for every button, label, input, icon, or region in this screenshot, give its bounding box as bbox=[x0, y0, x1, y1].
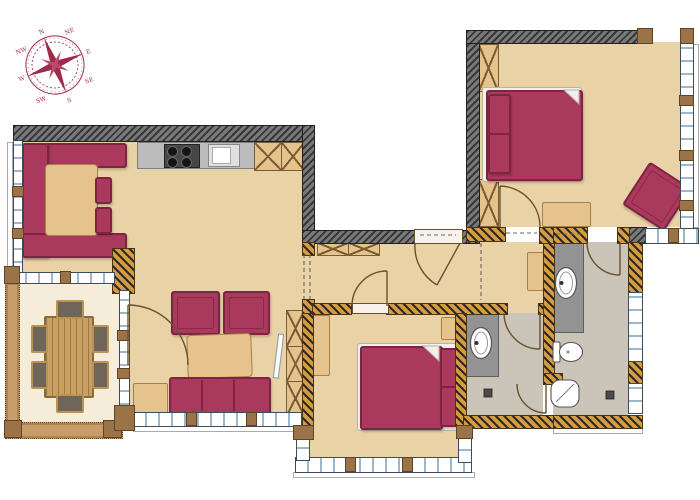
compass-label-se: SE bbox=[84, 76, 95, 86]
compass-label-s: S bbox=[66, 97, 72, 105]
wall-hall-south bbox=[312, 303, 352, 315]
kitchen-cabinet bbox=[254, 142, 282, 171]
compass-label-sw: SW bbox=[35, 95, 48, 106]
veranda-wall-left bbox=[5, 282, 20, 426]
window-post bbox=[679, 150, 694, 161]
bed-blanket bbox=[360, 346, 443, 430]
window-bay-side bbox=[458, 435, 472, 463]
dining-chair bbox=[92, 325, 109, 353]
living-corner-block bbox=[114, 405, 135, 431]
nook-cushion bbox=[95, 207, 112, 234]
burner-icon bbox=[181, 146, 192, 157]
dining-chair bbox=[31, 325, 48, 353]
wall-south-bath2 bbox=[463, 415, 555, 429]
burner-icon bbox=[167, 157, 178, 168]
wall-living-bedroom2 bbox=[302, 313, 314, 429]
window-post bbox=[345, 457, 356, 472]
window-post bbox=[679, 95, 694, 106]
window-post bbox=[12, 228, 24, 239]
bay-corner-block bbox=[456, 425, 473, 439]
exterior-wall-notch-right bbox=[466, 30, 480, 244]
open-passage-living bbox=[302, 253, 313, 300]
vanity-counter bbox=[552, 241, 584, 333]
hall-sideboard bbox=[317, 242, 349, 256]
burner-icon bbox=[181, 157, 192, 168]
hall-sideboard bbox=[348, 242, 380, 256]
wardrobe bbox=[478, 44, 499, 92]
wall-bath1-left bbox=[543, 242, 555, 385]
window-post bbox=[117, 368, 130, 379]
armchair bbox=[223, 291, 270, 335]
window-post bbox=[402, 457, 413, 472]
compass-label-w: W bbox=[18, 74, 27, 83]
hatched-pillar bbox=[112, 248, 135, 294]
window-veranda-living bbox=[119, 290, 130, 417]
window-post bbox=[60, 271, 71, 284]
armchair-cushion bbox=[229, 297, 264, 329]
hall-shelf bbox=[527, 252, 544, 291]
dining-table bbox=[44, 316, 94, 398]
armchair bbox=[171, 291, 220, 335]
wall-hall-south bbox=[386, 303, 508, 315]
coffee-table bbox=[186, 333, 252, 379]
entrance-door bbox=[414, 229, 463, 244]
veranda-corner-top bbox=[4, 266, 20, 284]
exterior-wall-notch-bottom bbox=[302, 230, 416, 244]
wall-south-bath1 bbox=[553, 415, 643, 429]
door-gap-bathroom2 bbox=[505, 303, 539, 313]
wall-bedroom1-south bbox=[466, 227, 506, 242]
window-post bbox=[679, 200, 694, 211]
window-post bbox=[246, 412, 257, 426]
side-table bbox=[133, 383, 168, 414]
bedroom2-bay-floor bbox=[305, 428, 460, 459]
kitchen-sink-basin bbox=[212, 147, 231, 164]
vanity-counter bbox=[466, 313, 499, 377]
exterior-wall-top bbox=[13, 125, 315, 142]
wall-bath1-top bbox=[553, 227, 588, 244]
sofa-seam bbox=[201, 380, 203, 411]
corner-block bbox=[637, 28, 653, 44]
wall-bedroom2-bath2 bbox=[455, 313, 467, 427]
window-bay-south bbox=[295, 457, 472, 473]
wall-bath1-stub bbox=[543, 373, 563, 385]
nook-cushion bbox=[95, 177, 112, 204]
window-post bbox=[186, 412, 197, 426]
window-west bbox=[13, 140, 23, 275]
window-bath-east bbox=[628, 292, 643, 362]
bed-pillow bbox=[488, 133, 511, 174]
exterior-wall-bedroom1-top bbox=[466, 30, 639, 44]
window-post bbox=[12, 186, 24, 197]
exterior-wall-notch-left bbox=[302, 125, 315, 244]
wall-junction bbox=[302, 242, 315, 256]
veranda-corner-bl bbox=[4, 420, 22, 438]
burner-icon bbox=[167, 146, 178, 157]
bed-pillow bbox=[488, 94, 511, 135]
bench bbox=[542, 202, 591, 227]
wall-east-segment bbox=[628, 360, 643, 385]
window-living-south bbox=[133, 412, 302, 427]
wall-east-segment bbox=[628, 242, 643, 294]
window-bath-east bbox=[628, 383, 643, 414]
bay-corner-block bbox=[293, 425, 314, 440]
compass-label-ne: NE bbox=[64, 27, 76, 37]
window-post bbox=[117, 330, 130, 341]
compass-label-n: N bbox=[38, 28, 45, 36]
wardrobe bbox=[478, 179, 499, 227]
floor-plan: N NE E SE S SW W NW bbox=[0, 0, 700, 500]
window-post bbox=[668, 228, 679, 243]
compass-label-e: E bbox=[85, 48, 92, 56]
corner-block bbox=[680, 28, 694, 44]
bedroom2-door-leaf bbox=[352, 303, 389, 314]
dining-chair bbox=[56, 300, 84, 319]
armchair-cushion bbox=[177, 297, 214, 329]
dining-chair bbox=[56, 394, 84, 413]
compass-label-nw: NW bbox=[15, 45, 29, 56]
sofa-seam bbox=[233, 380, 235, 411]
nook-table bbox=[45, 164, 98, 236]
dining-chair bbox=[31, 361, 48, 389]
compass-rose-icon: N NE E SE S SW W NW bbox=[4, 15, 106, 119]
dining-chair bbox=[92, 361, 109, 389]
